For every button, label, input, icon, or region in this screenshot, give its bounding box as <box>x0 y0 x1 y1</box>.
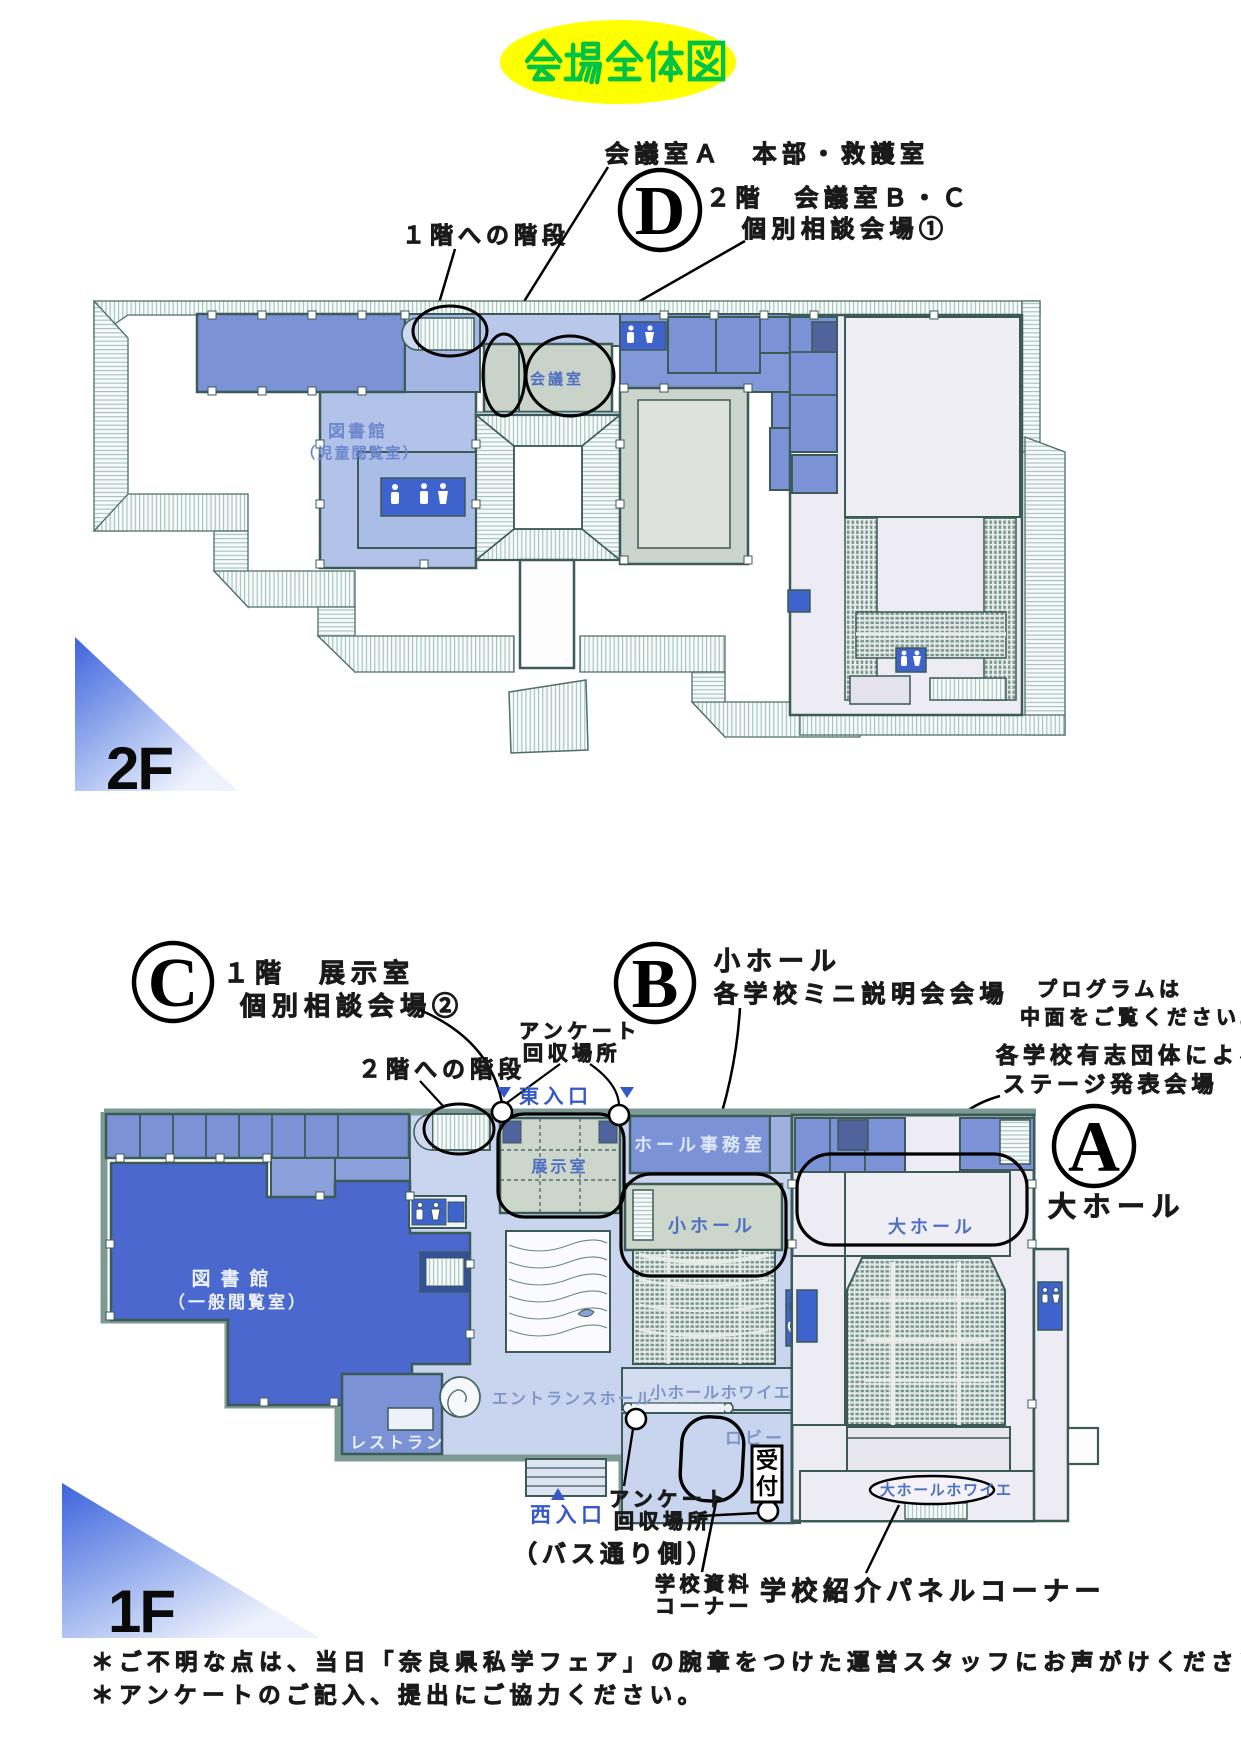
svg-text:展示室: 展示室 <box>531 1157 588 1176</box>
svg-text:図書館: 図書館 <box>328 421 388 441</box>
svg-text:会議室: 会議室 <box>530 370 584 388</box>
svg-text:A: A <box>1068 1107 1120 1187</box>
svg-text:受: 受 <box>756 1448 778 1473</box>
svg-text:小ホールホワイエ: 小ホールホワイエ <box>650 1384 791 1402</box>
svg-text:大ホール: 大ホール <box>1048 1191 1186 1222</box>
svg-text:（一般閲覧室）: （一般閲覧室） <box>168 1292 308 1312</box>
svg-text:東入口: 東入口 <box>519 1085 593 1108</box>
svg-text:＊ご不明な点は、当日「奈良県私学フェア」の腕章をつけた運営ス: ＊ご不明な点は、当日「奈良県私学フェア」の腕章をつけた運営スタッフにお声がけくだ… <box>91 1649 1241 1675</box>
svg-text:大ホール: 大ホール <box>888 1216 976 1237</box>
svg-text:1F: 1F <box>108 1578 174 1645</box>
svg-text:学校紹介パネルコーナー: 学校紹介パネルコーナー <box>760 1576 1106 1606</box>
svg-text:１階への階段: １階への階段 <box>402 222 570 248</box>
svg-text:各学校ミニ説明会会場: 各学校ミニ説明会会場 <box>713 980 1009 1008</box>
svg-text:回収場所: 回収場所 <box>614 1510 712 1533</box>
svg-text:ステージ発表会場: ステージ発表会場 <box>1003 1072 1219 1097</box>
svg-text:ホール事務室: ホール事務室 <box>634 1134 766 1155</box>
svg-text:プログラムは: プログラムは <box>1037 977 1183 1001</box>
svg-text:個別相談会場①: 個別相談会場① <box>741 215 949 243</box>
svg-text:小ホール: 小ホール <box>668 1216 756 1236</box>
svg-text:会議室Ａ 本部・救護室: 会議室Ａ 本部・救護室 <box>605 140 930 168</box>
svg-text:アンケート: アンケート <box>609 1488 731 1511</box>
svg-text:＊アンケートのご記入、提出にご協力ください。: ＊アンケートのご記入、提出にご協力ください。 <box>91 1682 706 1708</box>
svg-text:付: 付 <box>756 1474 778 1499</box>
svg-text:（バス通り側）: （バス通り側） <box>513 1541 716 1568</box>
svg-text:コーナー: コーナー <box>655 1596 753 1618</box>
svg-text:回収場所: 回収場所 <box>523 1042 621 1065</box>
svg-text:学校資料: 学校資料 <box>655 1572 753 1596</box>
svg-text:D: D <box>635 173 686 250</box>
svg-text:各学校有志団体による: 各学校有志団体による <box>995 1043 1241 1068</box>
svg-text:中面をご覧ください。: 中面をご覧ください。 <box>1020 1005 1241 1029</box>
svg-text:西入口: 西入口 <box>530 1504 607 1527</box>
svg-text:（児童閲覧室）: （児童閲覧室） <box>300 444 419 462</box>
svg-text:エントランスホール: エントランスホール <box>492 1390 654 1408</box>
svg-text:2F: 2F <box>106 735 172 802</box>
svg-text:個別相談会場②: 個別相談会場② <box>239 991 464 1021</box>
svg-text:２階 会議室Ｂ・Ｃ: ２階 会議室Ｂ・Ｃ <box>706 184 972 212</box>
svg-text:C: C <box>148 945 199 1022</box>
svg-text:B: B <box>632 946 679 1023</box>
svg-text:大ホールホワイエ: 大ホールホワイエ <box>880 1481 1013 1499</box>
svg-text:小ホール: 小ホール <box>714 946 842 976</box>
svg-text:アンケート: アンケート <box>519 1020 641 1043</box>
svg-text:レストラン: レストラン <box>350 1435 445 1452</box>
svg-text:図書館: 図書館 <box>191 1267 278 1290</box>
svg-text:１階 展示室: １階 展示室 <box>223 958 415 988</box>
svg-text:２階への階段: ２階への階段 <box>358 1056 526 1082</box>
